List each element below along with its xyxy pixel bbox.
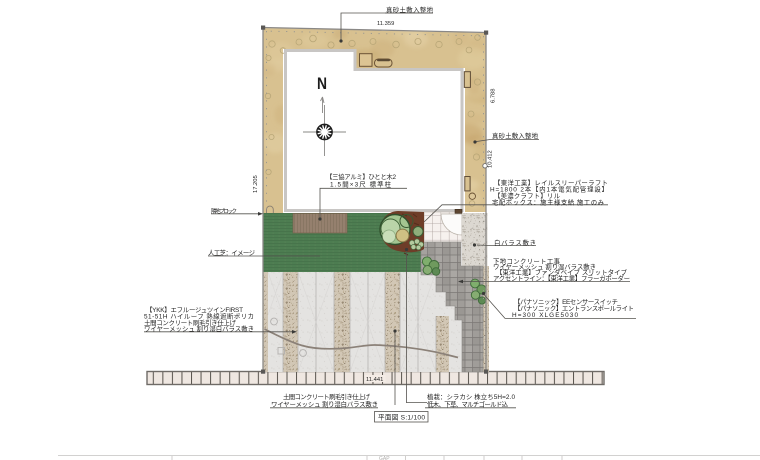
svg-text:1.5間×3尺 標準柱: 1.5間×3尺 標準柱 [330,180,392,189]
svg-text:【三協アルミ】ひとと木2: 【三協アルミ】ひとと木2 [326,172,396,181]
svg-text:アクセントライン：【東洋工業】フラーガボーダー: アクセントライン：【東洋工業】フラーガボーダー [493,274,630,283]
svg-text:ワイヤーメッシュ 割り湿白バラス敷き: ワイヤーメッシュ 割り湿白バラス敷き [144,324,254,333]
svg-text:ワイヤーメッシュ 割り湿白バラス敷き: ワイヤーメッシュ 割り湿白バラス敷き [271,400,378,409]
svg-text:17.205: 17.205 [253,175,259,193]
svg-text:11.441: 11.441 [366,377,383,383]
svg-text:GAP: GAP [379,456,390,460]
svg-text:低木、下草、マルチゴールド込: 低木、下草、マルチゴールド込 [427,400,509,409]
svg-text:平面図 S:1/100: 平面図 S:1/100 [378,414,425,422]
svg-text:H=300 XLGE5030: H=300 XLGE5030 [512,312,578,319]
svg-text:6.788: 6.788 [491,88,497,103]
svg-text:隣地ブロック: 隣地ブロック [211,207,237,215]
svg-text:11.359: 11.359 [377,21,394,27]
svg-text:N: N [317,74,327,93]
svg-text:真砂土敷入整地: 真砂土敷入整地 [492,131,539,140]
svg-text:人工芝：イメージ: 人工芝：イメージ [208,248,256,257]
svg-text:白バラス敷き: 白バラス敷き [494,238,536,247]
svg-text:土間コンクリート刷毛引き仕上げ: 土間コンクリート刷毛引き仕上げ [283,392,371,401]
svg-text:植栽：シラカシ 株立ち5H=2.0: 植栽：シラカシ 株立ち5H=2.0 [427,392,515,401]
svg-text:宅配ボックス：施主様支給 施工のみ: 宅配ボックス：施主様支給 施工のみ [492,197,605,206]
svg-text:10.412: 10.412 [488,150,494,168]
